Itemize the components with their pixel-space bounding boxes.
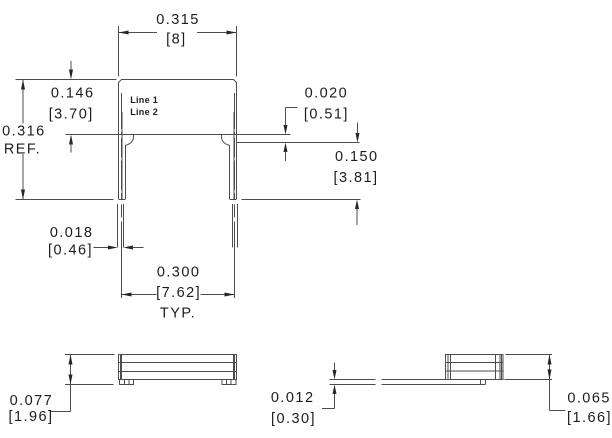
svg-text:0.018: 0.018 [50,225,94,241]
svg-text:Line 2: Line 2 [130,107,158,117]
svg-text:0.020: 0.020 [305,85,349,101]
svg-text:0.077: 0.077 [10,393,54,409]
svg-text:[8]: [8] [166,31,186,47]
svg-text:REF.: REF. [4,141,41,157]
svg-text:TYP.: TYP. [160,306,196,322]
svg-text:[7.62]: [7.62] [156,285,201,301]
svg-text:0.300: 0.300 [157,265,201,281]
svg-text:0.065: 0.065 [567,391,611,407]
svg-text:[3.70]: [3.70] [49,106,94,122]
svg-text:0.316: 0.316 [2,124,46,140]
svg-text:[3.81]: [3.81] [334,170,379,186]
svg-text:[0.46]: [0.46] [48,243,93,259]
svg-text:0.150: 0.150 [335,149,379,165]
svg-text:0.146: 0.146 [51,85,95,101]
svg-text:[0.30]: [0.30] [271,411,316,427]
svg-text:Line 1: Line 1 [130,95,158,105]
svg-text:[1.66]: [1.66] [567,410,612,426]
svg-text:[0.51]: [0.51] [304,106,349,122]
svg-text:[1.96]: [1.96] [9,409,54,425]
svg-text:0.012: 0.012 [271,390,315,406]
svg-text:0.315: 0.315 [156,12,200,28]
